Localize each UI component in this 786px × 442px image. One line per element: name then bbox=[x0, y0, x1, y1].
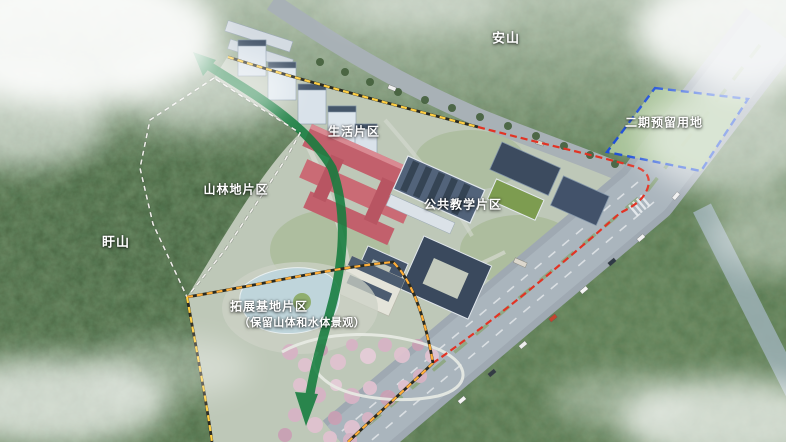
label-anshan-mountain: 安山 bbox=[492, 28, 520, 47]
label-expansion-base-zone: 拓展基地片区 bbox=[230, 298, 308, 315]
label-phase2-reserved-land: 二期预留用地 bbox=[625, 114, 703, 131]
label-mountain-forest-zone: 山林地片区 bbox=[203, 181, 268, 198]
masterplan-image: 安山 二期预留用地 生活片区 山林地片区 盱山 公共教学片区 拓展基地片区 （保… bbox=[0, 0, 786, 442]
label-expansion-base-note: （保留山体和水体景观） bbox=[239, 314, 366, 330]
masterplan-canvas bbox=[0, 0, 786, 442]
label-living-quarter: 生活片区 bbox=[328, 123, 380, 140]
label-public-teaching-zone: 公共教学片区 bbox=[424, 196, 502, 213]
label-xushan-mountain: 盱山 bbox=[102, 232, 130, 251]
